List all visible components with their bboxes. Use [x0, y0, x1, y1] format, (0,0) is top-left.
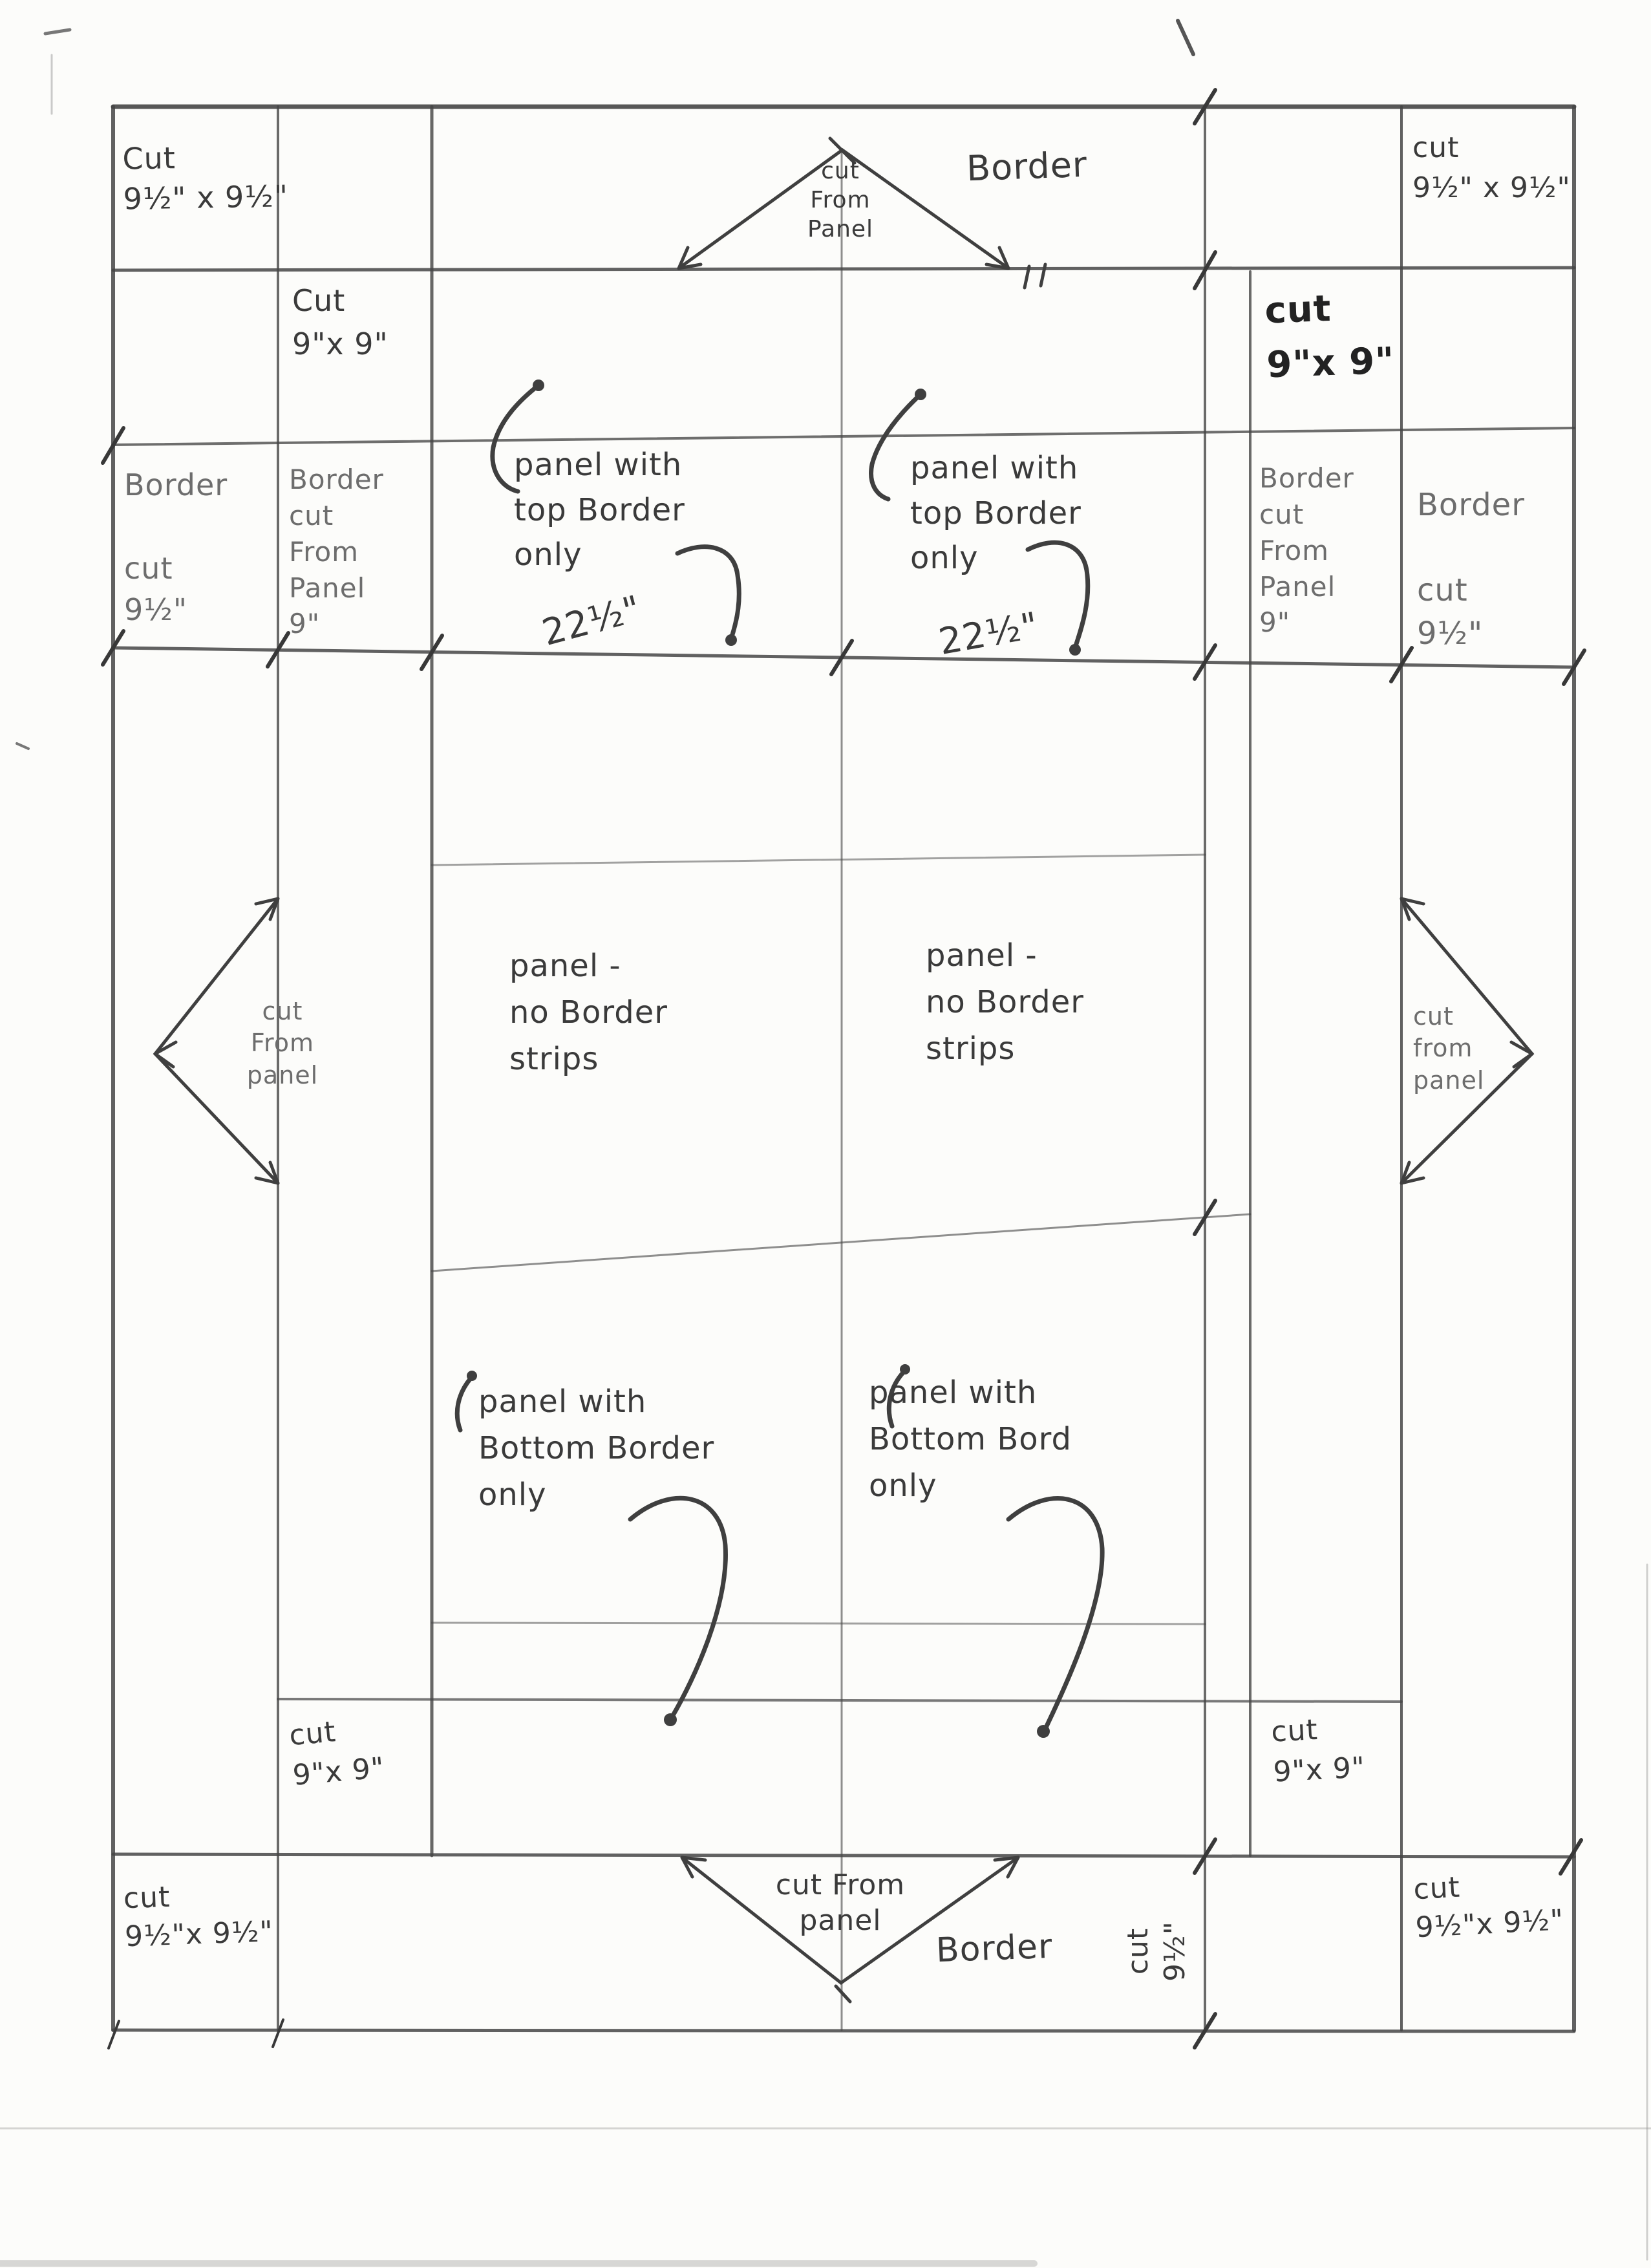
tl-only-hook-dot — [725, 634, 737, 646]
grid-h-bottomstrip-top — [113, 1854, 1574, 1857]
bottom-cut-left-label: cut 9"x 9" — [288, 1708, 387, 1795]
right-inner-column-label: Border cut From Panel 9" — [1259, 460, 1398, 641]
panel-mid-left-caption: panel - no Border strips — [509, 943, 668, 1082]
bl-panel-paren-dot — [467, 1371, 477, 1381]
bl-long-hook-dot — [664, 1713, 677, 1726]
tl-panel-arrow-dot — [533, 380, 544, 391]
corner-label-top-left: Cut 9½" x 9½" — [122, 135, 317, 219]
top-border-label: Border — [966, 140, 1089, 193]
right-triangle-label: cut from panel — [1413, 1001, 1549, 1097]
tr-only-hook-dot — [1069, 644, 1081, 656]
left-margin-mark — [17, 744, 28, 749]
bottom-triangle-label: cut From panel — [724, 1867, 957, 1938]
grid-h-bottom-cells-top — [278, 1699, 1401, 1702]
scanned-cutting-diagram: Cut 9½" x 9½" cut 9½" x 9½" cut 9½"x 9½"… — [0, 0, 1651, 2268]
panel-mid-right-caption: panel - no Border strips — [926, 932, 1084, 1072]
tr-panel-arrow-dot — [915, 389, 926, 400]
right-outer-column-label: Border cut 9½" — [1417, 484, 1572, 655]
tl-only-hook — [677, 547, 739, 639]
panel-top-left-caption: panel with top Border only — [514, 443, 685, 578]
panel-top-right-caption: panel with top Border only — [910, 446, 1081, 581]
panel-bottom-left-caption: panel with Bottom Border only — [478, 1378, 714, 1518]
grid-h-upper — [113, 428, 1574, 445]
bottom-rotated-cut-label: cut 9½" — [1120, 1887, 1223, 2016]
tl-page-dash — [45, 30, 70, 34]
row2-cut-right-label: cut 9"x 9" — [1264, 280, 1396, 393]
left-outer-column-label: Border cut 9½" — [124, 464, 273, 631]
br-long-hook-dot — [1037, 1725, 1050, 1738]
grid-h-panel-mid-top — [432, 855, 1205, 865]
grid-h-topstrip-bottom — [113, 268, 1574, 270]
left-triangle-label: cut From panel — [208, 996, 357, 1091]
row2-cut-left-label: Cut 9"x 9" — [292, 279, 389, 365]
top-edge-slash — [1178, 21, 1193, 54]
bottom-border-label: Border — [935, 1923, 1054, 1974]
corner-label-top-right: cut 9½" x 9½" — [1412, 128, 1581, 208]
corner-label-bottom-left: cut 9½"x 9½" — [123, 1873, 319, 1956]
top-triangle-label: cut From Panel — [763, 156, 918, 244]
bl-long-hook — [630, 1498, 725, 1717]
corner-label-bottom-right: cut 9½"x 9½" — [1412, 1861, 1597, 1947]
bottom-cut-right-label: cut 9"x 9" — [1270, 1707, 1367, 1792]
panel-bottom-right-caption: panel with Bottom Bord only — [869, 1369, 1072, 1509]
br-long-hook — [1008, 1499, 1102, 1728]
bl-panel-paren — [457, 1378, 471, 1430]
grid-h-bottom — [113, 2030, 1574, 2031]
left-inner-column-label: Border cut From Panel 9" — [289, 462, 431, 642]
